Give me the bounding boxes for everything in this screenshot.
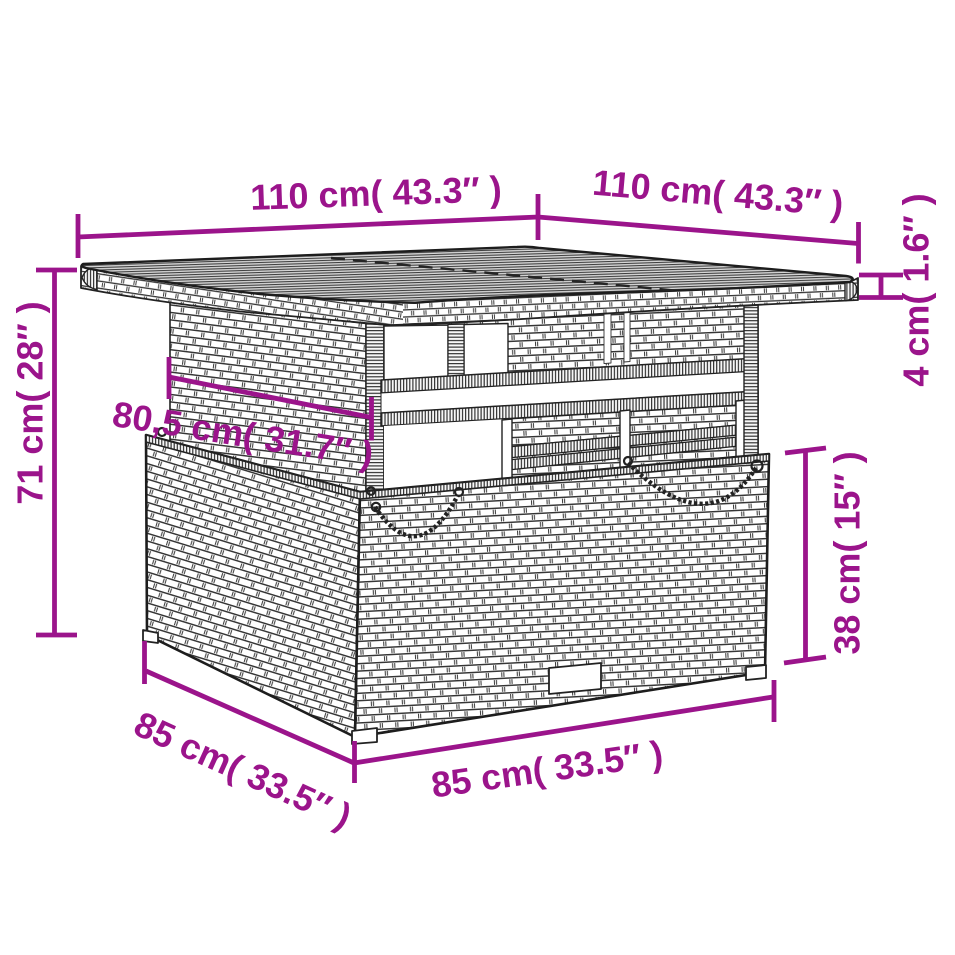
svg-text:110 cm( 43.3″ ): 110 cm( 43.3″ ) [250, 168, 503, 218]
svg-text:4 cm( 1.6″ ): 4 cm( 1.6″ ) [896, 193, 937, 386]
svg-text:38 cm( 15″ ): 38 cm( 15″ ) [827, 451, 868, 654]
svg-text:71 cm( 28″ ): 71 cm( 28″ ) [10, 301, 51, 504]
